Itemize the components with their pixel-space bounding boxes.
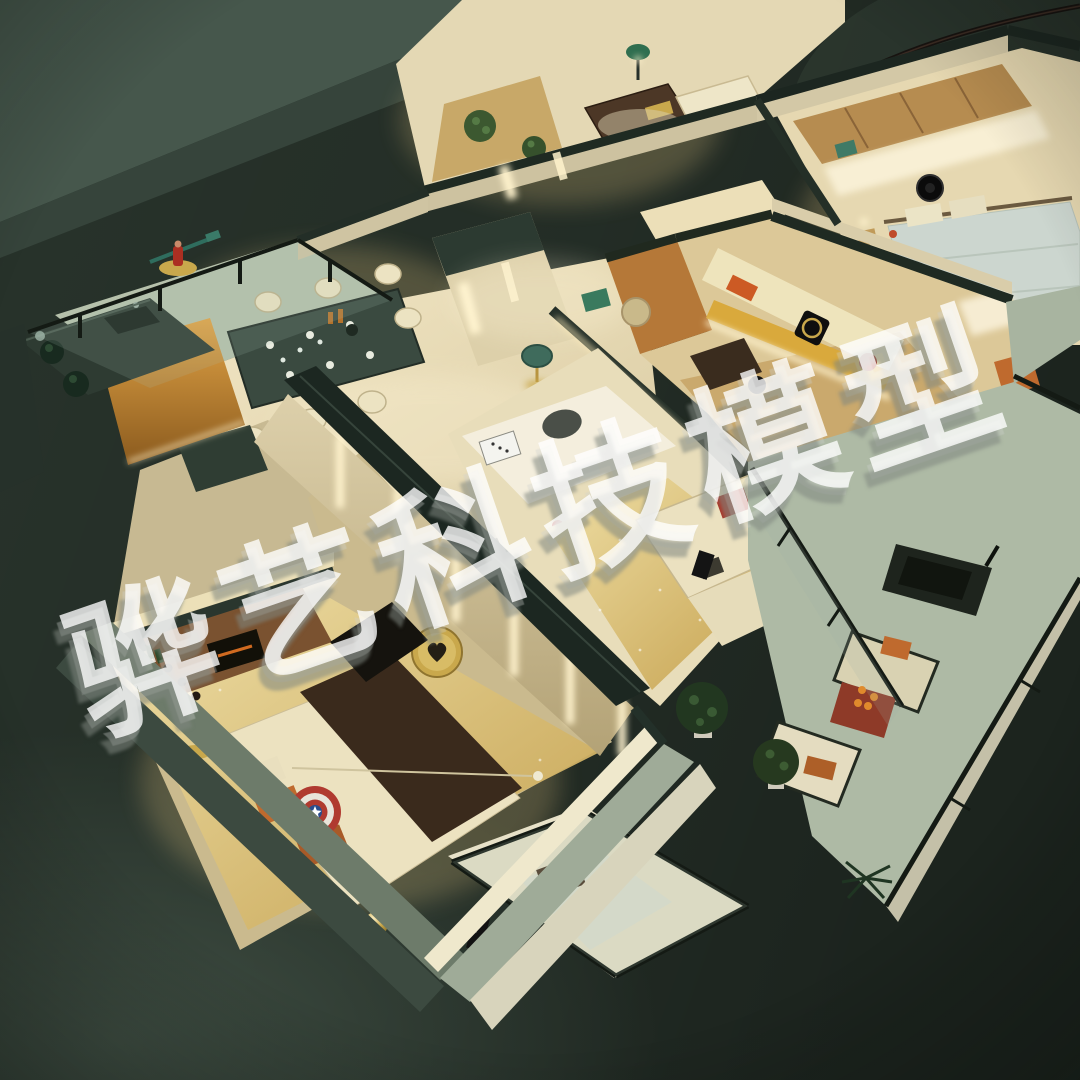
photo-of-apartment-model: 骅艺科技模型	[0, 0, 1080, 1080]
scene-svg	[0, 0, 1080, 1080]
vignette	[0, 0, 1080, 1080]
